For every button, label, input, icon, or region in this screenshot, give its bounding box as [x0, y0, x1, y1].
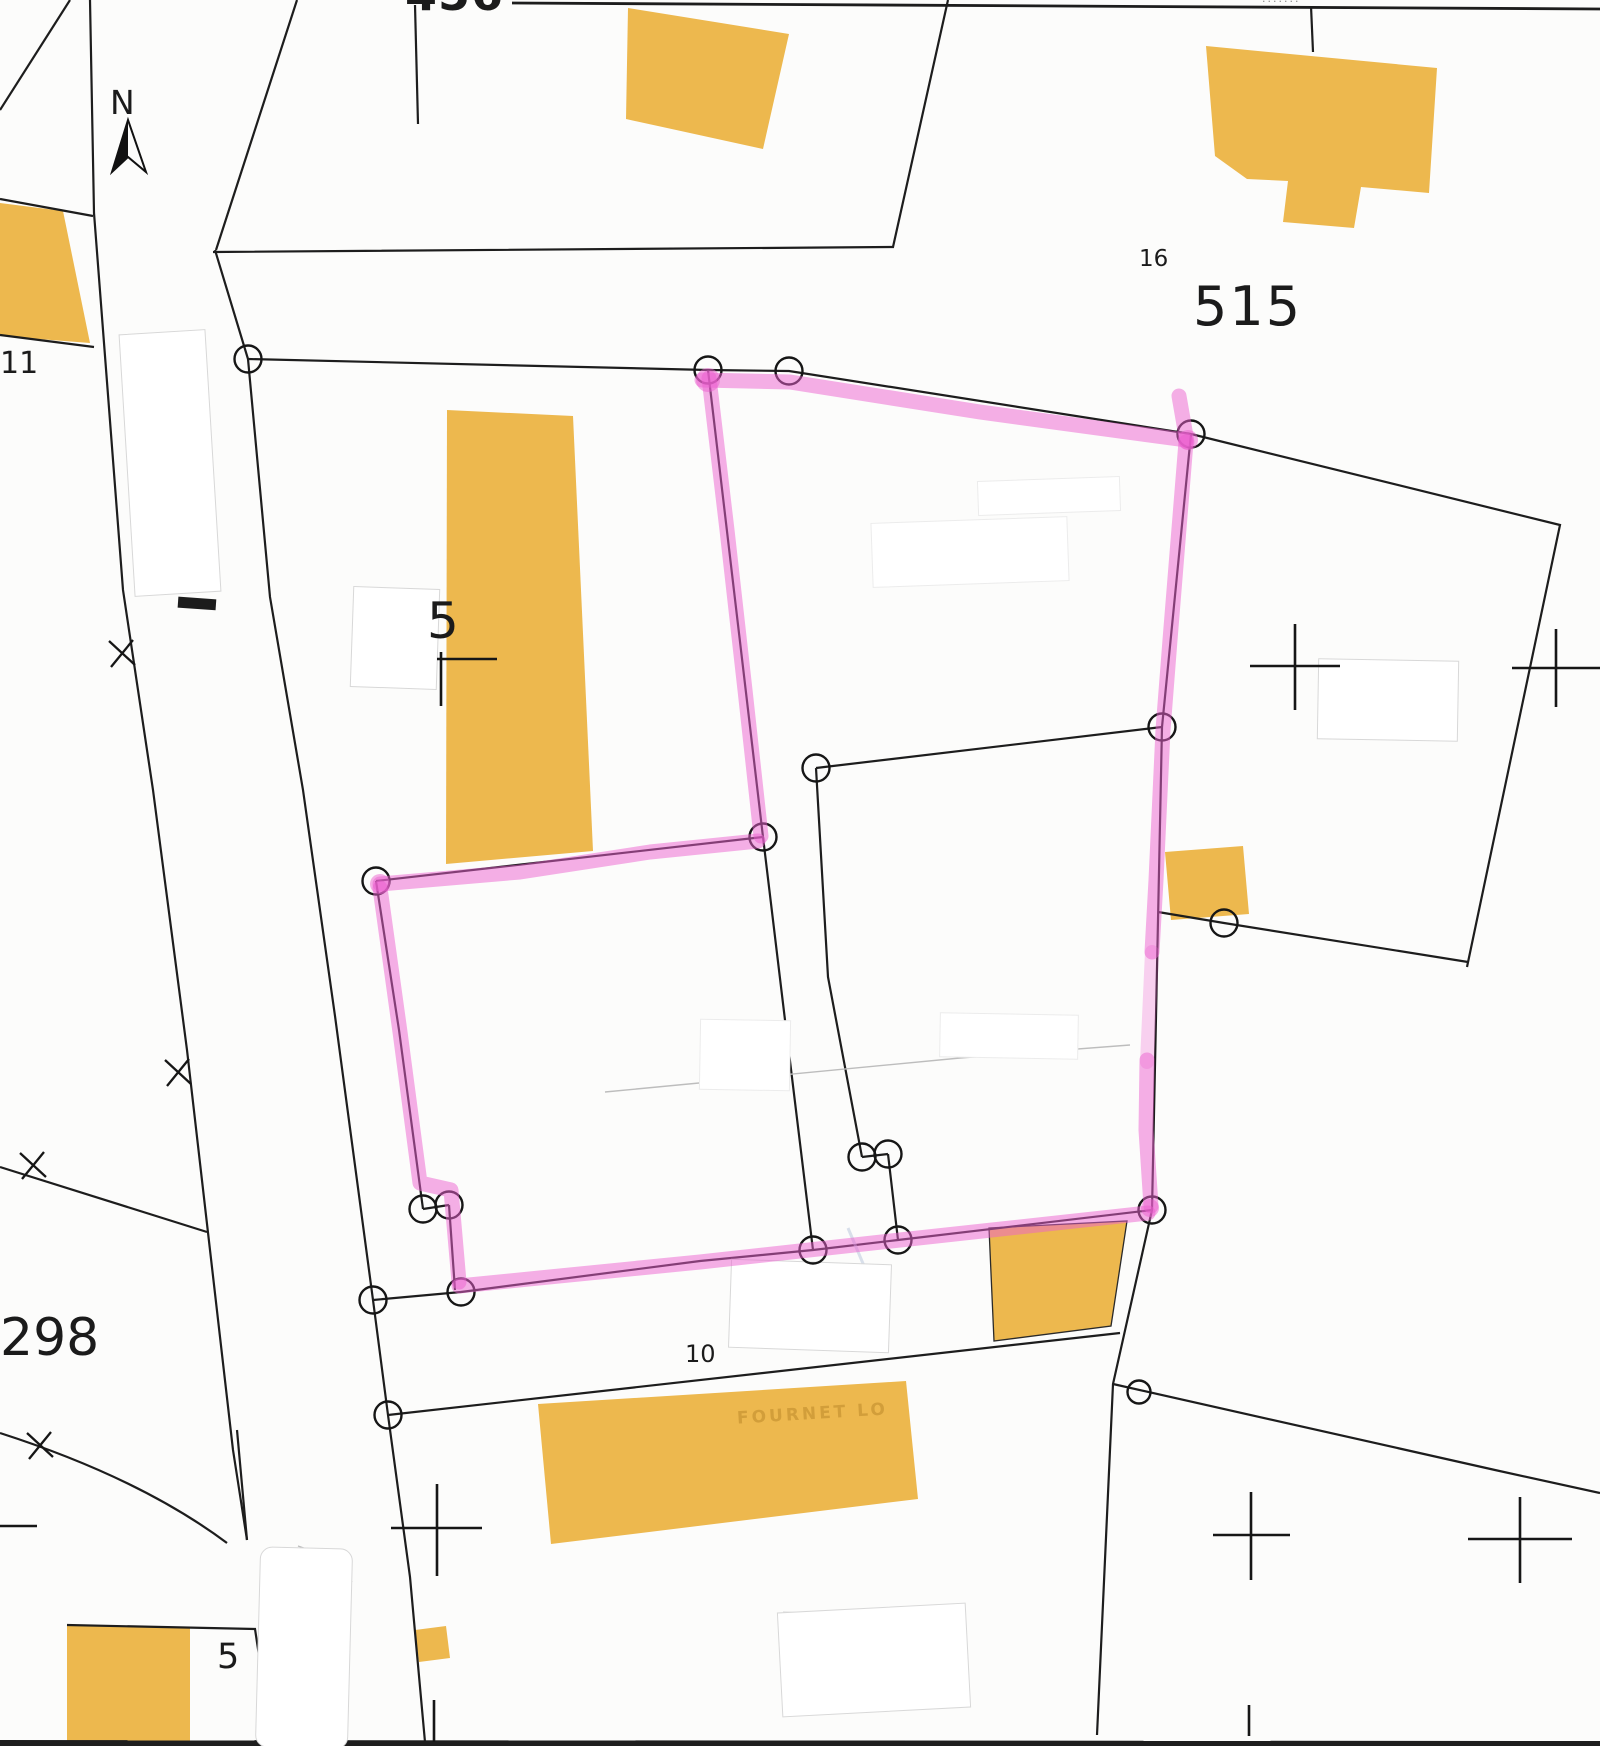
building: [1206, 46, 1437, 228]
north-label: N: [110, 86, 135, 119]
highlight-blob: [696, 368, 720, 392]
parcel-line: [415, 5, 418, 124]
x-mark: [109, 640, 135, 667]
white-patches-layer: [119, 330, 1459, 1746]
parcel-line: [1311, 6, 1313, 52]
black-mark: [178, 597, 217, 611]
buildings-layer: [0, 8, 1437, 1742]
top-edge-cut-text: ·······: [1262, 0, 1300, 7]
parcel-line: [0, 1167, 207, 1232]
parcel-line: [1113, 1384, 1600, 1493]
parcel-label-5-bottom: 5: [217, 1640, 239, 1675]
parcel-label-10: 10: [685, 1342, 716, 1366]
parcel-line: [1158, 912, 1468, 962]
parcel-label-456: 456: [405, 0, 504, 17]
survey-marks-layer: [0, 624, 1600, 1742]
white-patch: [777, 1603, 970, 1717]
parcel-label-16: 16: [1139, 248, 1168, 271]
building: [626, 8, 789, 149]
building: [446, 410, 593, 864]
parcel-line: [816, 727, 1162, 768]
building: [415, 1626, 450, 1662]
parcel-line: [816, 768, 862, 1157]
white-patch: [729, 1259, 892, 1353]
parcel-label-515: 515: [1193, 280, 1302, 334]
road-edge-left: [90, 0, 247, 1540]
parcel-label-5-center: 5: [427, 596, 459, 646]
x-mark: [165, 1059, 191, 1086]
cadastral-map-canvas: 456 ······· 16 515 11 298 10 5 5 N FOURN…: [0, 0, 1600, 1746]
map-drawing: [0, 0, 1600, 1746]
sheet-bottom-edge: [0, 1743, 1600, 1744]
parcel-label-298: 298: [0, 1312, 99, 1364]
highlight-blob: [370, 874, 390, 894]
x-mark: [27, 1432, 53, 1459]
building: [989, 1221, 1127, 1341]
parcel-label-11: 11: [0, 349, 38, 379]
parcel-line: [512, 3, 1600, 9]
parcel-line: [0, 0, 70, 110]
highlight-blob: [1141, 1199, 1159, 1217]
grid-cross: [1213, 1492, 1290, 1580]
north-arrow-icon: [112, 120, 146, 172]
building: [1165, 846, 1249, 920]
white-patch: [255, 1547, 352, 1746]
white-patch: [1317, 659, 1458, 741]
parcel-line: [248, 359, 708, 370]
white-patch: [699, 1019, 790, 1091]
highlight-stroke: [702, 380, 1186, 440]
grid-cross: [1468, 1497, 1572, 1583]
white-patch: [977, 477, 1120, 516]
white-patch: [940, 1013, 1079, 1059]
building: [67, 1625, 190, 1742]
highlight-stroke: [1146, 1060, 1151, 1206]
building: [0, 203, 90, 343]
highlight-stroke: [1147, 952, 1152, 1062]
parcel-line: [213, 0, 948, 252]
parcel-line: [216, 0, 297, 250]
white-patch: [119, 330, 221, 597]
white-patch: [871, 517, 1069, 588]
highlight-stroke: [709, 378, 761, 836]
highlight-blob: [1178, 430, 1198, 450]
x-mark: [20, 1152, 46, 1179]
